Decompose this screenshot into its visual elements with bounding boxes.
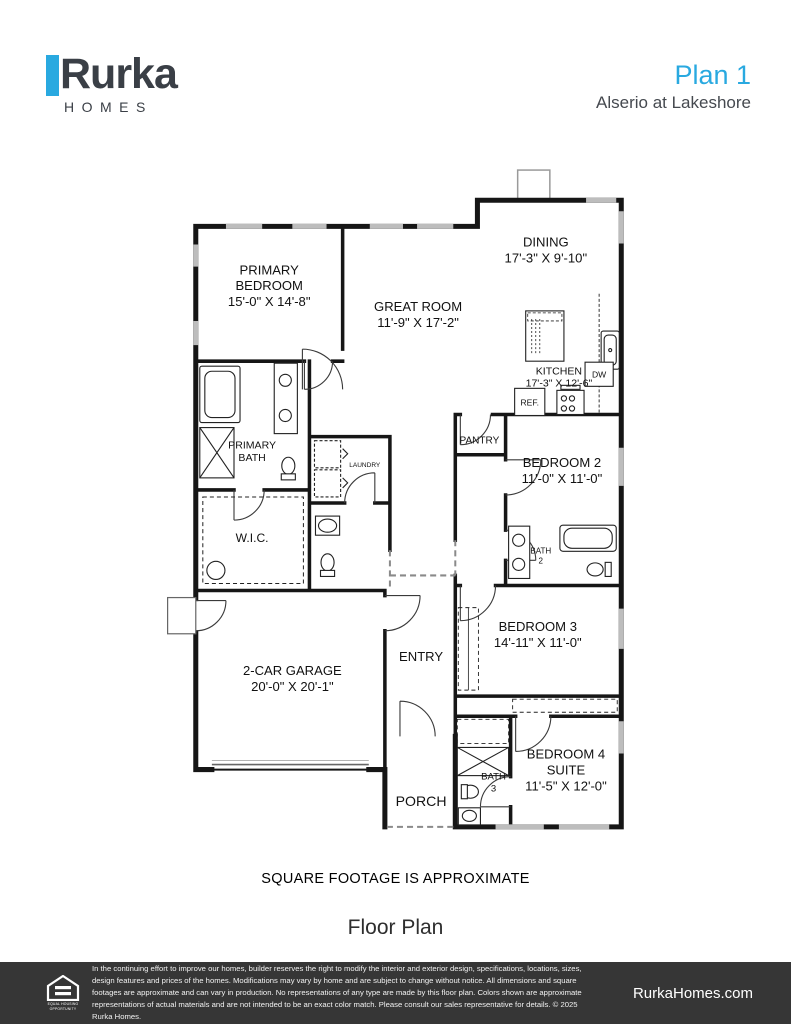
- room-label-great-room: GREAT ROOM: [374, 299, 462, 314]
- page-caption: Floor Plan: [0, 916, 791, 940]
- room-label-primary-bath: PRIMARY: [228, 440, 276, 452]
- room-label-primary-bedroom: PRIMARY: [240, 263, 300, 278]
- logo-accent-bar-icon: [46, 55, 59, 96]
- room-label-primary-bedroom: BEDROOM: [235, 278, 302, 293]
- label-dishwasher: DW: [592, 369, 607, 379]
- room-label-bath-3: BATH: [481, 772, 506, 783]
- openings: [387, 540, 455, 827]
- room-dims-bedroom-4: 11'-5" X 12'-0": [525, 779, 607, 794]
- plan-title: Plan 1: [596, 60, 751, 90]
- room-label-wic: W.I.C.: [236, 531, 269, 545]
- room-label-entry: ENTRY: [399, 649, 443, 664]
- room-dims-dining: 17'-3" X 9'-10": [505, 251, 588, 266]
- side-door-icon: [168, 598, 196, 634]
- room-label-bath-2: BATH: [530, 546, 551, 555]
- room-label-primary-bath: BATH: [238, 452, 265, 464]
- brand-name: Rurka: [60, 52, 177, 96]
- garage-door: [212, 761, 369, 770]
- room-label-dining: DINING: [523, 235, 569, 250]
- room-dims-kitchen: 17'-3" X 12'-6": [526, 377, 593, 389]
- flyer-page: Rurka HOMES Plan 1 Alserio at Lakeshore: [0, 0, 791, 1024]
- website-url: RurkaHomes.com: [633, 985, 753, 1002]
- room-dims-primary-bedroom: 15'-0" X 14'-8": [228, 294, 311, 309]
- room-dims-great-room: 11'-9" X 17'-2": [377, 315, 459, 330]
- chimney-outline: [518, 170, 550, 200]
- label-refrigerator: REF.: [520, 397, 539, 407]
- room-label-bedroom-4: BEDROOM 4: [527, 747, 605, 762]
- community-name: Alserio at Lakeshore: [596, 93, 751, 113]
- room-label-bedroom-2: BEDROOM 2: [523, 455, 601, 470]
- equal-housing-icon: EQUAL HOUSING OPPORTUNITY: [46, 975, 80, 1011]
- room-label-laundry: LAUNDRY: [349, 462, 381, 469]
- floor-plan-drawing: PRIMARY BEDROOM 15'-0" X 14'-8" GREAT RO…: [163, 158, 647, 842]
- room-label-bath-3: 3: [491, 784, 496, 795]
- floor-plan: PRIMARY BEDROOM 15'-0" X 14'-8" GREAT RO…: [163, 158, 647, 842]
- room-label-bath-2: 2: [539, 556, 544, 565]
- brand-logo: Rurka HOMES: [46, 52, 177, 115]
- room-label-bedroom-3: BEDROOM 3: [499, 619, 577, 634]
- equal-housing-label: EQUAL HOUSING OPPORTUNITY: [46, 1002, 80, 1011]
- footer: EQUAL HOUSING OPPORTUNITY In the continu…: [0, 962, 791, 1024]
- brand-subtitle: HOMES: [64, 99, 177, 115]
- room-label-kitchen: KITCHEN: [536, 365, 582, 377]
- room-label-bedroom-4: SUITE: [547, 763, 586, 778]
- room-label-garage: 2-CAR GARAGE: [243, 663, 342, 678]
- legal-disclaimer: In the continuing effort to improve our …: [92, 963, 588, 1023]
- sqft-disclaimer: SQUARE FOOTAGE IS APPROXIMATE: [0, 871, 791, 887]
- room-dims-bedroom-2: 11'-0" X 11'-0": [522, 471, 603, 486]
- room-dims-garage: 20'-0" X 20'-1": [251, 679, 334, 694]
- room-label-porch: PORCH: [396, 793, 447, 809]
- room-label-pantry: PANTRY: [460, 436, 500, 447]
- room-dims-bedroom-3: 14'-11" X 11'-0": [494, 635, 582, 650]
- doors: [196, 349, 551, 807]
